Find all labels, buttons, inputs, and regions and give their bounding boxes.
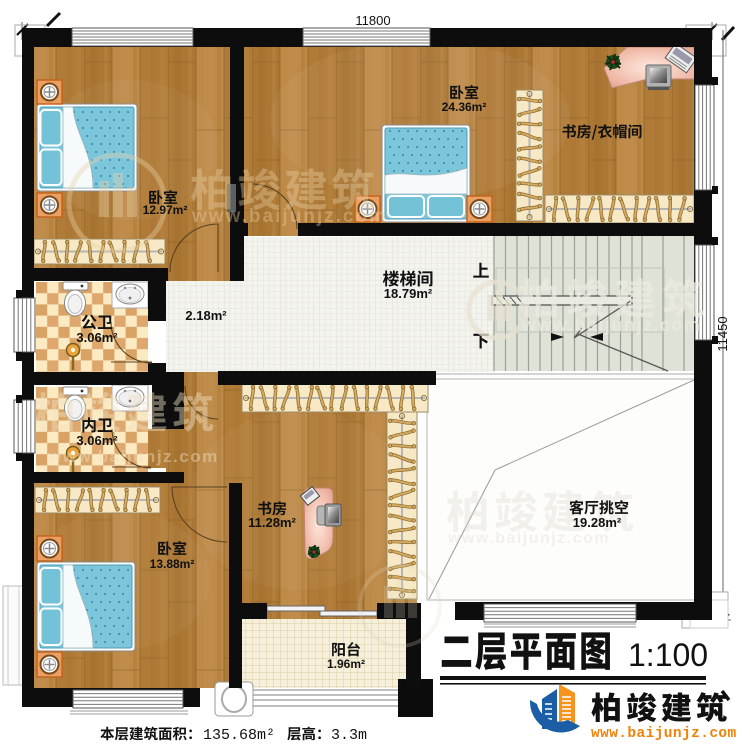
svg-text:1:100: 1:100 [628,637,708,673]
svg-text:11.28m²: 11.28m² [248,515,296,530]
svg-text:2.18m²: 2.18m² [185,308,227,323]
svg-text:24.36m²: 24.36m² [442,100,487,114]
svg-text:12.97m²: 12.97m² [143,203,188,217]
svg-text:3.06m²: 3.06m² [76,433,118,448]
svg-text:3.06m²: 3.06m² [76,330,118,345]
svg-text:www.baijunjz.com: www.baijunjz.com [591,726,737,742]
svg-text:18.79m²: 18.79m² [384,286,433,301]
svg-text:11450: 11450 [715,316,730,351]
svg-text:1.96m²: 1.96m² [327,657,365,671]
svg-text:11800: 11800 [355,13,390,28]
svg-text:3.3m: 3.3m [331,727,367,744]
svg-text:13.88m²: 13.88m² [150,557,195,571]
svg-text:www.baijunjz.com: www.baijunjz.com [521,315,701,335]
svg-text:135.68m²: 135.68m² [203,727,275,744]
svg-text:www.baijunjz.com: www.baijunjz.com [47,447,219,466]
svg-text:www.baijunjz.com: www.baijunjz.com [447,530,610,547]
svg-text:19.28m²: 19.28m² [573,515,622,530]
svg-text:www.baijunjz.com: www.baijunjz.com [191,206,388,227]
